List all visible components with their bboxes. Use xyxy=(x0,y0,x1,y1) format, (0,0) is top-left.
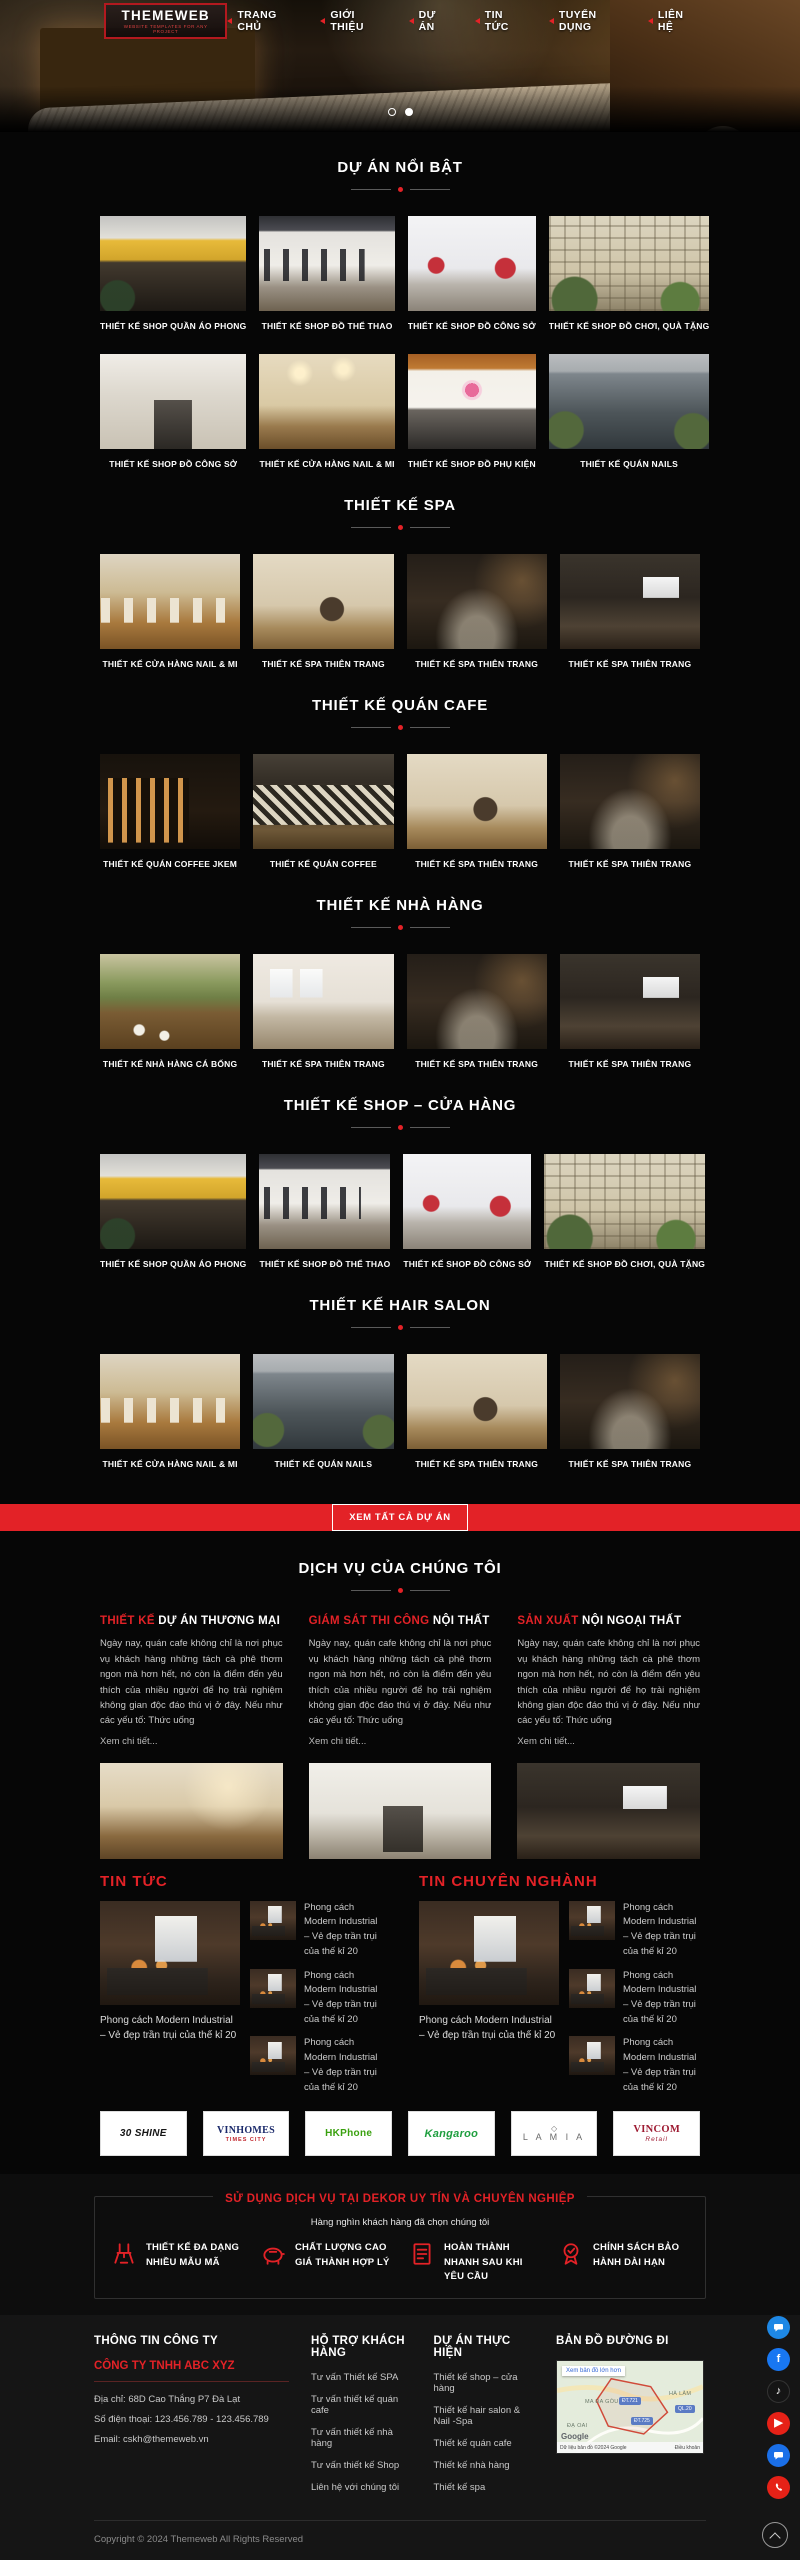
piggy-bank-icon xyxy=(260,2241,286,2267)
project-title: THIẾT KẾ SPA THIÊN TRANG xyxy=(407,659,547,670)
divider-dot-icon xyxy=(398,725,403,730)
nav-item-projects[interactable]: DỰ ÁN xyxy=(409,9,450,33)
project-title: THIẾT KẾ QUÁN NAILS xyxy=(549,459,710,470)
project-title: THIẾT KẾ CỬA HÀNG NAIL & MI xyxy=(259,459,394,470)
footer-link[interactable]: Thiết kế nhà hàng xyxy=(434,2460,535,2471)
news-list-item[interactable]: Phong cách Modern Industrial – Vẻ đẹp tr… xyxy=(250,2036,381,2095)
nav-marker-icon xyxy=(227,18,232,24)
service-image xyxy=(517,1763,700,1859)
brand-logos-row: 30 SHINE VINHOMESTIMES CITY HKPhone Kang… xyxy=(100,2111,700,2156)
news-title: TIN TỨC xyxy=(100,1873,381,1890)
guarantee-item: HOÀN THÀNH NHANH SAU KHI YÊU CẦU xyxy=(409,2241,540,2284)
project-card[interactable]: THIẾT KẾ SPA THIÊN TRANG xyxy=(253,954,393,1070)
slider-dot-active[interactable] xyxy=(405,108,413,116)
news-list-item[interactable]: Phong cách Modern Industrial – Vẻ đẹp tr… xyxy=(250,1901,381,1960)
footer-support-links: HỖ TRỢ KHÁCH HÀNG Tư vấn Thiết kế SPA Tư… xyxy=(311,2335,412,2504)
nav-marker-icon xyxy=(549,18,554,24)
copyright-text: Copyright © 2024 Themeweb All Rights Res… xyxy=(94,2521,706,2560)
youtube-icon[interactable]: ▶ xyxy=(767,2412,790,2435)
page: THEMEWEB WEBSITE TEMPLATES FOR ANY PROJE… xyxy=(0,0,800,2560)
section-shop: THIẾT KẾ SHOP – CỬA HÀNG THIẾT KẾ SHOP Q… xyxy=(100,1070,700,1270)
service-image xyxy=(309,1763,492,1859)
section-divider xyxy=(100,925,700,930)
map-terms-link[interactable]: Điều khoản xyxy=(675,2445,700,2451)
section-divider xyxy=(100,525,700,530)
article-image xyxy=(419,1901,559,2005)
project-title: THIẾT KẾ SHOP QUẦN ÁO PHONG xyxy=(100,1259,246,1270)
project-title: THIẾT KẾ SHOP ĐỒ CHƠI, QUÀ TẶNG xyxy=(549,321,710,332)
project-thumbnail xyxy=(407,954,547,1049)
section-divider xyxy=(100,1588,700,1593)
header: THEMEWEB WEBSITE TEMPLATES FOR ANY PROJE… xyxy=(0,0,800,42)
project-card[interactable]: THIẾT KẾ SHOP ĐỒ CHƠI, QUÀ TẶNG xyxy=(549,216,710,332)
article-caption: Phong cách Modern Industrial – Vẻ đẹp tr… xyxy=(304,1901,381,1960)
featured-article[interactable]: Phong cách Modern Industrial – Vẻ đẹp tr… xyxy=(419,1901,559,2096)
view-larger-map-button[interactable]: Xem bản đồ lớn hơn xyxy=(562,2366,625,2376)
project-card[interactable]: THIẾT KẾ CỬA HÀNG NAIL & MI xyxy=(259,354,394,470)
divider-dot-icon xyxy=(398,525,403,530)
brand-logo-hkphone[interactable]: HKPhone xyxy=(305,2111,392,2156)
article-caption: Phong cách Modern Industrial – Vẻ đẹp tr… xyxy=(304,2036,381,2095)
article-caption: Phong cách Modern Industrial – Vẻ đẹp tr… xyxy=(304,1969,381,2028)
main-nav: TRANG CHỦ GIỚI THIỆU DỰ ÁN TIN TỨC TUYỂN… xyxy=(227,9,696,33)
project-thumbnail xyxy=(408,354,536,449)
service-description: Ngày nay, quán cafe không chỉ là nơi phụ… xyxy=(517,1636,700,1728)
section-divider xyxy=(100,187,700,192)
zalo-icon[interactable] xyxy=(767,2444,790,2467)
company-address: Địa chỉ: 68D Cao Thắng P7 Đà Lạt xyxy=(94,2392,289,2407)
project-thumbnail xyxy=(259,354,394,449)
service-title: GIÁM SÁT THI CÔNG NỘI THẤT xyxy=(309,1615,492,1627)
section-guarantees: SỬ DỤNG DỊCH VỤ TẠI DEKOR UY TÍN VÀ CHUY… xyxy=(0,2174,800,2315)
copyright-bar: Copyright © 2024 Themeweb All Rights Res… xyxy=(94,2520,706,2560)
project-title: THIẾT KẾ SHOP ĐỒ CÔNG SỞ xyxy=(100,459,246,470)
project-card[interactable]: THIẾT KẾ NHÀ HÀNG CÁ BỐNG xyxy=(100,954,240,1070)
nav-item-home[interactable]: TRANG CHỦ xyxy=(227,9,295,33)
service-description: Ngày nay, quán cafe không chỉ là nơi phụ… xyxy=(100,1636,283,1728)
guarantee-label: THIẾT KẾ ĐA DẠNG NHIỀU MẪU MÃ xyxy=(146,2241,242,2270)
footer-link[interactable]: Thiết kế spa xyxy=(434,2482,535,2493)
project-title: THIẾT KẾ SHOP ĐỒ THỂ THAO xyxy=(259,1259,390,1270)
project-thumbnail xyxy=(253,754,393,849)
guarantee-item: CHÍNH SÁCH BẢO HÀNH DÀI HẠN xyxy=(558,2241,689,2284)
news-list-item[interactable]: Phong cách Modern Industrial – Vẻ đẹp tr… xyxy=(569,2036,700,2095)
project-thumbnail xyxy=(403,1154,531,1249)
section-hair-salon: THIẾT KẾ HAIR SALON THIẾT KẾ CỬA HÀNG NA… xyxy=(100,1270,700,1470)
project-thumbnail xyxy=(100,554,240,649)
guarantees-title: SỬ DỤNG DỊCH VỤ TẠI DEKOR UY TÍN VÀ CHUY… xyxy=(213,2193,587,2205)
project-card[interactable]: THIẾT KẾ CỬA HÀNG NAIL & MI xyxy=(100,554,240,670)
section-featured-projects: DỰ ÁN NỔI BẬT THIẾT KẾ SHOP QUẦN ÁO PHON… xyxy=(100,132,700,470)
project-card[interactable]: THIẾT KẾ SPA THIÊN TRANG xyxy=(253,554,393,670)
section-title: DỊCH VỤ CỦA CHÚNG TÔI xyxy=(100,1559,700,1579)
brand-logo-30shine[interactable]: 30 SHINE xyxy=(100,2111,187,2156)
footer: THÔNG TIN CÔNG TY CÔNG TY TNHH ABC XYZ Đ… xyxy=(0,2315,800,2560)
google-map-embed[interactable]: MA ĐA GÒU HÀ LÂM ĐẠ OAI ĐT.721 ĐT.725 QL… xyxy=(556,2360,704,2454)
scroll-to-top-button[interactable] xyxy=(762,2522,788,2548)
project-card[interactable]: THIẾT KẾ QUÁN NAILS xyxy=(253,1354,393,1470)
brand-logo-kangaroo[interactable]: Kangaroo xyxy=(408,2111,495,2156)
site-logo[interactable]: THEMEWEB WEBSITE TEMPLATES FOR ANY PROJE… xyxy=(104,3,227,39)
service-read-more-link[interactable]: Xem chi tiết... xyxy=(100,1736,158,1747)
section-cafe: THIẾT KẾ QUÁN CAFE THIẾT KẾ QUÁN COFFEE … xyxy=(100,670,700,870)
project-thumbnail xyxy=(100,216,246,311)
cta-band: XEM TẤT CẢ DỰ ÁN xyxy=(0,1504,800,1531)
article-caption: Phong cách Modern Industrial – Vẻ đẹp tr… xyxy=(623,1969,700,2028)
project-title: THIẾT KẾ SHOP ĐỒ CÔNG SỞ xyxy=(403,1259,531,1270)
project-thumbnail xyxy=(253,1354,393,1449)
service-title: SẢN XUẤT NỘI NGOẠI THẤT xyxy=(517,1615,700,1627)
warranty-ribbon-icon xyxy=(558,2241,584,2267)
nav-marker-icon xyxy=(475,18,480,24)
project-title: THIẾT KẾ SHOP ĐỒ CÔNG SỞ xyxy=(408,321,536,332)
divider-dot-icon xyxy=(398,1588,403,1593)
footer-link[interactable]: Tư vấn thiết kế quán cafe xyxy=(311,2394,412,2416)
service-column: GIÁM SÁT THI CÔNG NỘI THẤT Ngày nay, quá… xyxy=(309,1615,492,1748)
guarantee-label: CHÍNH SÁCH BẢO HÀNH DÀI HẠN xyxy=(593,2241,689,2270)
project-thumbnail xyxy=(407,754,547,849)
tiktok-icon[interactable]: ♪ xyxy=(767,2380,790,2403)
section-title: THIẾT KẾ QUÁN CAFE xyxy=(100,696,700,716)
footer-link[interactable]: Liên hệ với chúng tôi xyxy=(311,2482,412,2493)
facebook-icon[interactable]: f xyxy=(767,2348,790,2371)
project-card[interactable]: THIẾT KẾ CỬA HÀNG NAIL & MI xyxy=(100,1354,240,1470)
brand-logo-vincom[interactable]: VINCOMRetail xyxy=(613,2111,700,2156)
project-card[interactable]: THIẾT KẾ QUÁN COFFEE JKEM xyxy=(100,754,240,870)
chair-icon xyxy=(111,2241,137,2267)
project-card[interactable]: THIẾT KẾ SHOP ĐỒ PHỤ KIỆN xyxy=(408,354,536,470)
divider-dot-icon xyxy=(398,1325,403,1330)
footer-map-column: BẢN ĐỒ ĐƯỜNG ĐI MA ĐA GÒU HÀ LÂM ĐẠ OAI … xyxy=(556,2335,706,2504)
project-title: THIẾT KẾ SPA THIÊN TRANG xyxy=(560,1459,700,1470)
map-place-label: MA ĐA GÒU xyxy=(585,2399,619,2405)
footer-company-info: THÔNG TIN CÔNG TY CÔNG TY TNHH ABC XYZ Đ… xyxy=(94,2335,289,2504)
project-thumbnail xyxy=(560,1354,700,1449)
nav-item-contact[interactable]: LIÊN HỆ xyxy=(648,9,696,33)
news-list-item[interactable]: Phong cách Modern Industrial – Vẻ đẹp tr… xyxy=(569,1969,700,2028)
service-image xyxy=(100,1763,283,1859)
project-card[interactable]: THIẾT KẾ SPA THIÊN TRANG xyxy=(560,554,700,670)
brand-logo-vinhomes[interactable]: VINHOMESTIMES CITY xyxy=(203,2111,290,2156)
project-card[interactable]: THIẾT KẾ SPA THIÊN TRANG xyxy=(407,754,547,870)
news-title: TIN CHUYÊN NGHÀNH xyxy=(419,1873,700,1890)
project-title: THIẾT KẾ CỬA HÀNG NAIL & MI xyxy=(100,1459,240,1470)
project-thumbnail xyxy=(408,216,536,311)
project-thumbnail xyxy=(100,754,240,849)
guarantee-label: HOÀN THÀNH NHANH SAU KHI YÊU CẦU xyxy=(444,2241,540,2284)
news-column-general: TIN TỨC Phong cách Modern Industrial – V… xyxy=(100,1873,381,2096)
project-card[interactable]: THIẾT KẾ SHOP ĐỒ CÔNG SỞ xyxy=(100,354,246,470)
section-title: THIẾT KẾ NHÀ HÀNG xyxy=(100,896,700,916)
company-phone: Số điện thoại: 123.456.789 - 123.456.789 xyxy=(94,2412,289,2427)
project-thumbnail xyxy=(100,354,246,449)
footer-column-title: THÔNG TIN CÔNG TY xyxy=(94,2335,289,2347)
logo-title: THEMEWEB xyxy=(115,8,216,23)
map-road-badge: QL.20 xyxy=(675,2405,695,2413)
section-news: TIN TỨC Phong cách Modern Industrial – V… xyxy=(100,1859,700,2157)
project-title: THIẾT KẾ SHOP ĐỒ CHƠI, QUÀ TẶNG xyxy=(544,1259,705,1270)
project-title: THIẾT KẾ SPA THIÊN TRANG xyxy=(407,1059,547,1070)
project-title: THIẾT KẾ NHÀ HÀNG CÁ BỐNG xyxy=(100,1059,240,1070)
divider-dot-icon xyxy=(398,925,403,930)
brand-logo-lamia[interactable]: ◇L A M I A xyxy=(511,2111,598,2156)
project-title: THIẾT KẾ SPA THIÊN TRANG xyxy=(407,1459,547,1470)
project-card[interactable]: THIẾT KẾ QUÁN COFFEE xyxy=(253,754,393,870)
section-title: THIẾT KẾ SHOP – CỬA HÀNG xyxy=(100,1096,700,1116)
project-card[interactable]: THIẾT KẾ SHOP QUẦN ÁO PHONG xyxy=(100,1154,246,1270)
map-place-label: HÀ LÂM xyxy=(669,2391,691,2397)
project-thumbnail xyxy=(407,554,547,649)
article-caption: Phong cách Modern Industrial – Vẻ đẹp tr… xyxy=(419,2013,559,2043)
project-thumbnail xyxy=(259,216,394,311)
footer-link[interactable]: Thiết kế shop – cửa hàng xyxy=(434,2372,535,2394)
project-thumbnail xyxy=(253,954,393,1049)
project-thumbnail xyxy=(253,554,393,649)
section-spa: THIẾT KẾ SPA THIẾT KẾ CỬA HÀNG NAIL & MI… xyxy=(100,470,700,670)
section-services: DỊCH VỤ CỦA CHÚNG TÔI THIẾT KẾ DỰ ÁN THƯ… xyxy=(100,1531,700,1858)
guarantees-subtitle: Hàng nghìn khách hàng đã chọn chúng tôi xyxy=(111,2217,689,2228)
news-column-industry: TIN CHUYÊN NGHÀNH Phong cách Modern Indu… xyxy=(419,1873,700,2096)
section-title: DỰ ÁN NỔI BẬT xyxy=(100,158,700,178)
project-thumbnail xyxy=(407,1354,547,1449)
nav-marker-icon xyxy=(648,18,653,24)
project-thumbnail xyxy=(544,1154,705,1249)
featured-article[interactable]: Phong cách Modern Industrial – Vẻ đẹp tr… xyxy=(100,1901,240,2096)
project-card[interactable]: THIẾT KẾ SHOP ĐỒ CHƠI, QUÀ TẶNG xyxy=(544,1154,705,1270)
project-title: THIẾT KẾ QUÁN COFFEE xyxy=(253,859,393,870)
article-thumbnail xyxy=(250,1969,296,2008)
news-list-item[interactable]: Phong cách Modern Industrial – Vẻ đẹp tr… xyxy=(569,1901,700,1960)
project-card[interactable]: THIẾT KẾ QUÁN NAILS xyxy=(549,354,710,470)
guarantee-label: CHẤT LƯỢNG CAO GIÁ THÀNH HỢP LÝ xyxy=(295,2241,391,2270)
footer-project-links: DỰ ÁN THỰC HIỆN Thiết kế shop – cửa hàng… xyxy=(434,2335,535,2504)
project-card[interactable]: THIẾT KẾ SPA THIÊN TRANG xyxy=(407,554,547,670)
service-column: SẢN XUẤT NỘI NGOẠI THẤT Ngày nay, quán c… xyxy=(517,1615,700,1748)
divider-dot-icon xyxy=(398,1125,403,1130)
map-place-label: ĐẠ OAI xyxy=(567,2423,587,2429)
project-card[interactable]: THIẾT KẾ SPA THIÊN TRANG xyxy=(407,954,547,1070)
project-card[interactable]: THIẾT KẾ SPA THIÊN TRANG xyxy=(407,1354,547,1470)
map-road-badge: ĐT.721 xyxy=(619,2397,641,2405)
footer-column-title: DỰ ÁN THỰC HIỆN xyxy=(434,2335,535,2359)
project-card[interactable]: THIẾT KẾ SPA THIÊN TRANG xyxy=(560,754,700,870)
nav-item-news[interactable]: TIN TỨC xyxy=(475,9,524,33)
article-thumbnail xyxy=(250,1901,296,1940)
project-title: THIẾT KẾ SPA THIÊN TRANG xyxy=(560,659,700,670)
footer-column-title: HỖ TRỢ KHÁCH HÀNG xyxy=(311,2335,412,2359)
article-image xyxy=(100,1901,240,2005)
footer-link[interactable]: Thiết kế quán cafe xyxy=(434,2438,535,2449)
hero-slider: THEMEWEB WEBSITE TEMPLATES FOR ANY PROJE… xyxy=(0,0,800,132)
footer-column-title: BẢN ĐỒ ĐƯỜNG ĐI xyxy=(556,2335,706,2347)
section-title: THIẾT KẾ HAIR SALON xyxy=(100,1296,700,1316)
project-title: THIẾT KẾ SPA THIÊN TRANG xyxy=(560,859,700,870)
project-thumbnail xyxy=(549,354,710,449)
article-caption: Phong cách Modern Industrial – Vẻ đẹp tr… xyxy=(623,1901,700,1960)
footer-link[interactable]: Tư vấn thiết kế nhà hàng xyxy=(311,2427,412,2449)
news-list-item[interactable]: Phong cách Modern Industrial – Vẻ đẹp tr… xyxy=(250,1969,381,2028)
section-divider xyxy=(100,1125,700,1130)
guarantee-item: THIẾT KẾ ĐA DẠNG NHIỀU MẪU MÃ xyxy=(111,2241,242,2284)
project-card[interactable]: THIẾT KẾ SHOP ĐỒ CÔNG SỞ xyxy=(408,216,536,332)
nav-marker-icon xyxy=(409,18,414,24)
project-title: THIẾT KẾ SPA THIÊN TRANG xyxy=(407,859,547,870)
order-list-icon xyxy=(409,2241,435,2267)
project-card[interactable]: THIẾT KẾ SPA THIÊN TRANG xyxy=(560,954,700,1070)
project-thumbnail xyxy=(560,554,700,649)
project-card[interactable]: THIẾT KẾ SHOP QUẦN ÁO PHONG xyxy=(100,216,246,332)
project-title: THIẾT KẾ SPA THIÊN TRANG xyxy=(560,1059,700,1070)
service-read-more-link[interactable]: Xem chi tiết... xyxy=(309,1736,367,1747)
service-title: THIẾT KẾ DỰ ÁN THƯƠNG MẠI xyxy=(100,1615,283,1627)
service-column: THIẾT KẾ DỰ ÁN THƯƠNG MẠI Ngày nay, quán… xyxy=(100,1615,283,1748)
section-title: THIẾT KẾ SPA xyxy=(100,496,700,516)
messenger-icon[interactable] xyxy=(767,2316,790,2339)
project-thumbnail xyxy=(100,954,240,1049)
project-title: THIẾT KẾ SPA THIÊN TRANG xyxy=(253,1059,393,1070)
service-read-more-link[interactable]: Xem chi tiết... xyxy=(517,1736,575,1747)
nav-item-about[interactable]: GIỚI THIỆU xyxy=(320,9,383,33)
project-card[interactable]: THIẾT KẾ SPA THIÊN TRANG xyxy=(560,1354,700,1470)
footer-link[interactable]: Tư vấn Thiết kế SPA xyxy=(311,2372,412,2383)
footer-link[interactable]: Thiết kế hair salon & Nail -Spa xyxy=(434,2405,535,2427)
project-card[interactable]: THIẾT KẾ SHOP ĐỒ THỂ THAO xyxy=(259,216,394,332)
view-all-projects-button[interactable]: XEM TẤT CẢ DỰ ÁN xyxy=(332,1504,467,1531)
google-logo: Google xyxy=(561,2432,589,2441)
project-thumbnail xyxy=(549,216,710,311)
project-title: THIẾT KẾ SHOP QUẦN ÁO PHONG xyxy=(100,321,246,332)
article-thumbnail xyxy=(250,2036,296,2075)
article-thumbnail xyxy=(569,1901,615,1940)
footer-divider xyxy=(94,2381,289,2382)
section-divider xyxy=(100,725,700,730)
project-title: THIẾT KẾ CỬA HÀNG NAIL & MI xyxy=(100,659,240,670)
article-thumbnail xyxy=(569,2036,615,2075)
section-restaurant: THIẾT KẾ NHÀ HÀNG THIẾT KẾ NHÀ HÀNG CÁ B… xyxy=(100,870,700,1070)
chevron-up-icon xyxy=(769,2532,780,2543)
article-caption: Phong cách Modern Industrial – Vẻ đẹp tr… xyxy=(623,2036,700,2095)
project-title: THIẾT KẾ SHOP ĐỒ PHỤ KIỆN xyxy=(408,459,536,470)
project-card[interactable]: THIẾT KẾ SHOP ĐỒ CÔNG SỞ xyxy=(403,1154,531,1270)
nav-item-careers[interactable]: TUYỂN DỤNG xyxy=(549,9,623,33)
slider-dot[interactable] xyxy=(388,108,396,116)
section-divider xyxy=(100,1325,700,1330)
company-name: CÔNG TY TNHH ABC XYZ xyxy=(94,2360,289,2372)
project-thumbnail xyxy=(560,754,700,849)
service-description: Ngày nay, quán cafe không chỉ là nơi phụ… xyxy=(309,1636,492,1728)
company-email: Email: cskh@themeweb.vn xyxy=(94,2432,289,2447)
guarantee-item: CHẤT LƯỢNG CAO GIÁ THÀNH HỢP LÝ xyxy=(260,2241,391,2284)
logo-subtitle: WEBSITE TEMPLATES FOR ANY PROJECT xyxy=(115,24,216,34)
project-title: THIẾT KẾ QUÁN NAILS xyxy=(253,1459,393,1470)
phone-icon[interactable] xyxy=(767,2476,790,2499)
article-thumbnail xyxy=(569,1969,615,2008)
project-card[interactable]: THIẾT KẾ SHOP ĐỒ THỂ THAO xyxy=(259,1154,390,1270)
project-title: THIẾT KẾ SPA THIÊN TRANG xyxy=(253,659,393,670)
project-title: THIẾT KẾ SHOP ĐỒ THỂ THAO xyxy=(259,321,394,332)
nav-marker-icon xyxy=(320,18,325,24)
project-thumbnail xyxy=(100,1154,246,1249)
project-title: THIẾT KẾ QUÁN COFFEE JKEM xyxy=(100,859,240,870)
map-attribution: Dữ liệu bản đồ ©2024 Google Điều khoản xyxy=(557,2442,703,2453)
footer-link[interactable]: Tư vấn thiết kế Shop xyxy=(311,2460,412,2471)
project-thumbnail xyxy=(259,1154,390,1249)
article-caption: Phong cách Modern Industrial – Vẻ đẹp tr… xyxy=(100,2013,240,2043)
map-road-badge: ĐT.725 xyxy=(631,2417,653,2425)
slider-dots xyxy=(0,108,800,116)
divider-dot-icon xyxy=(398,187,403,192)
project-thumbnail xyxy=(560,954,700,1049)
project-thumbnail xyxy=(100,1354,240,1449)
